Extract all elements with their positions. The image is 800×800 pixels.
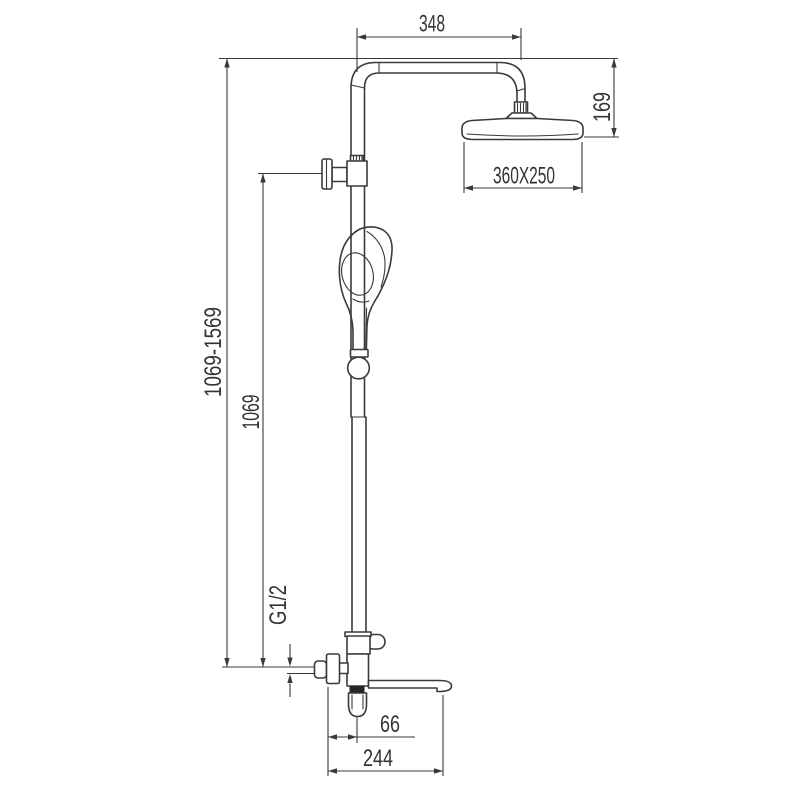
mixer-valve <box>347 654 369 717</box>
overhead-shower-head <box>462 113 583 140</box>
label-rail-height: 1069 <box>238 395 265 430</box>
valve-handle <box>315 654 349 684</box>
dimension-arrowheads <box>224 34 616 773</box>
technical-drawing-page: 348 169 360X250 1069-1569 1069 G1/2 66 2… <box>0 0 800 800</box>
shower-arm <box>351 63 525 163</box>
slider-knob <box>348 350 370 379</box>
shower-rail <box>351 160 366 634</box>
spout-shelf <box>369 681 452 692</box>
diverter <box>345 632 385 654</box>
label-inlet-thread: G1/2 <box>265 585 292 625</box>
label-spout-offset: 66 <box>380 711 400 738</box>
label-spout-reach: 244 <box>363 745 393 772</box>
shower-column-drawing: 348 169 360X250 1069-1569 1069 G1/2 66 2… <box>0 0 800 800</box>
connector-nut <box>515 102 528 113</box>
wall-bracket <box>322 156 367 190</box>
label-head-drop: 169 <box>589 92 616 122</box>
label-head-size: 360X250 <box>493 163 555 190</box>
drawing-parts <box>315 63 584 717</box>
label-arm-reach: 348 <box>419 11 445 38</box>
label-overall-height: 1069-1569 <box>200 307 227 397</box>
